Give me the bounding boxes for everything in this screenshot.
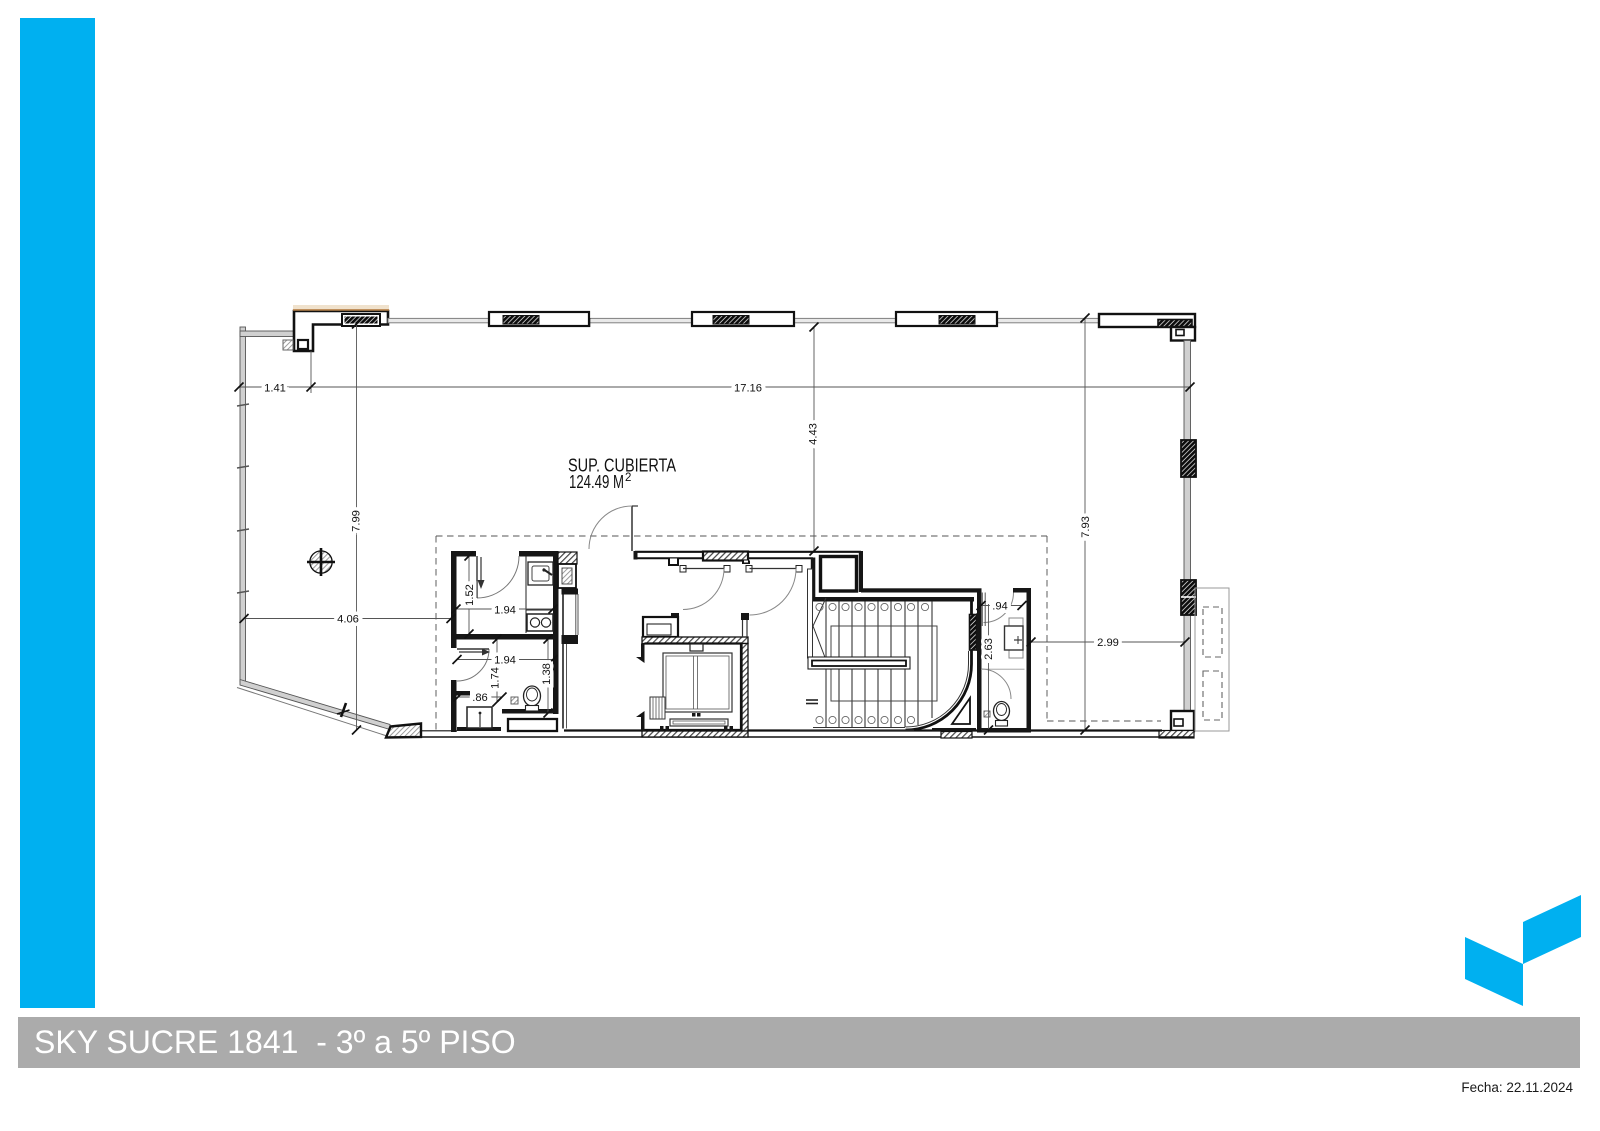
svg-text:SKY SUCRE 1841 - 3º a 5º PISO: SKY SUCRE 1841 - 3º a 5º PISO	[34, 1024, 516, 1060]
svg-text:1.38: 1.38	[541, 663, 553, 685]
svg-text:17.16: 17.16	[734, 383, 762, 395]
svg-text:.94: .94	[992, 601, 1008, 613]
svg-text:7.99: 7.99	[351, 510, 363, 532]
svg-text:1.41: 1.41	[264, 383, 286, 395]
svg-text:2.63: 2.63	[983, 638, 995, 660]
svg-text:1.94: 1.94	[494, 655, 516, 667]
svg-text:124.49 M: 124.49 M	[569, 472, 624, 492]
svg-text:2.99: 2.99	[1097, 637, 1119, 649]
svg-text:4.06: 4.06	[337, 614, 359, 626]
svg-text:7.93: 7.93	[1080, 516, 1092, 538]
svg-text:1.94: 1.94	[494, 604, 516, 616]
svg-text:1.52: 1.52	[464, 584, 476, 606]
svg-text:1.74: 1.74	[490, 667, 502, 689]
svg-text:Fecha: 22.11.2024: Fecha: 22.11.2024	[1461, 1080, 1573, 1095]
svg-text:.86: .86	[472, 692, 488, 704]
svg-text:2: 2	[625, 472, 631, 484]
svg-text:4.43: 4.43	[808, 423, 820, 445]
